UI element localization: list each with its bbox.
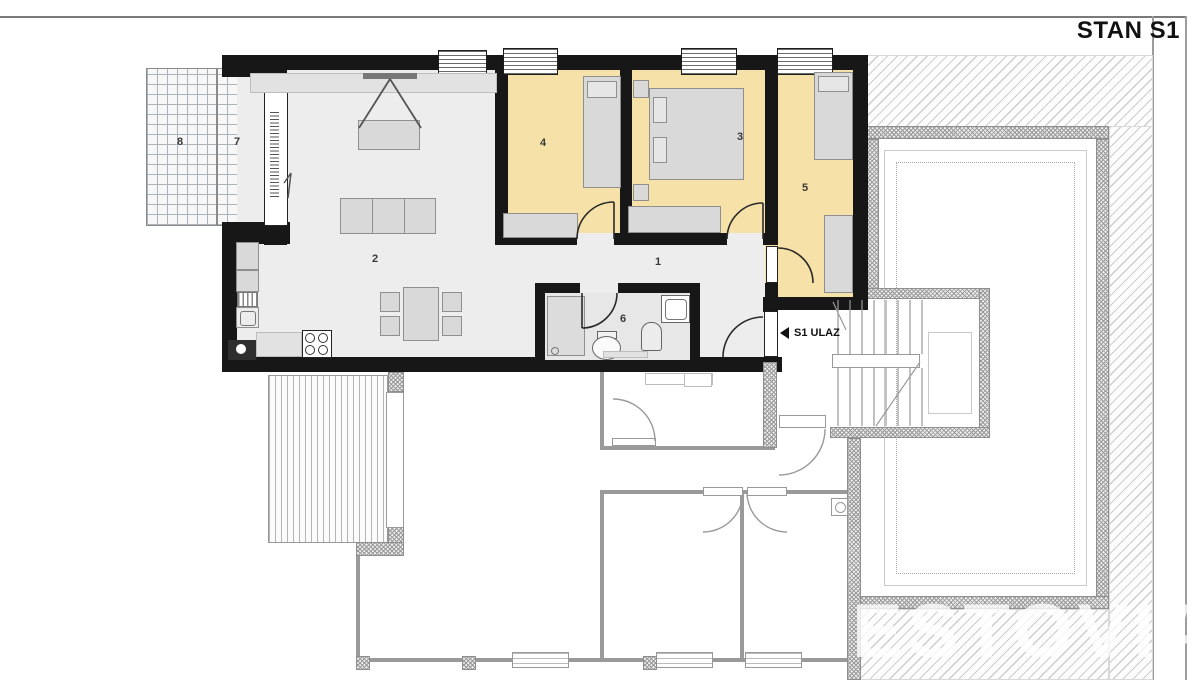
watermark: ESTOVIA bbox=[852, 588, 1200, 675]
stove-burner-3 bbox=[305, 345, 315, 355]
window-bedroom-4 bbox=[503, 48, 558, 75]
lower-hall-wall-right bbox=[763, 362, 777, 448]
room-label-hallway: 1 bbox=[655, 256, 661, 268]
bath-wall-top-b bbox=[618, 283, 690, 293]
nightstand-room3-bottom bbox=[633, 184, 649, 201]
lower-door-jamb-1 bbox=[703, 487, 743, 496]
dining-chair-1 bbox=[380, 292, 400, 312]
roof-enclosure-wall-right bbox=[1096, 139, 1109, 609]
sink-basin bbox=[240, 311, 256, 326]
stairwell-wall-right bbox=[979, 288, 990, 438]
bath-wall-left bbox=[535, 283, 545, 372]
pillow-room4 bbox=[587, 81, 617, 98]
wardrobe-room4 bbox=[503, 213, 578, 238]
wall-rooms-bottom-b bbox=[614, 233, 727, 245]
stairwell-landing bbox=[832, 354, 920, 368]
bathroom-shelf bbox=[603, 351, 648, 358]
lower-wall-top-c bbox=[787, 490, 852, 494]
sheet-right-rule-outer bbox=[1185, 16, 1187, 680]
room-label-bedroom4: 4 bbox=[540, 137, 546, 149]
corner-sink-bowl bbox=[236, 344, 246, 354]
fridge bbox=[236, 242, 259, 270]
lower-boiler-dial bbox=[835, 502, 846, 513]
lower-sliding-door bbox=[386, 392, 404, 528]
lower-door-jamb-2 bbox=[747, 487, 787, 496]
pillow-room5 bbox=[818, 76, 849, 92]
hanging-chair-bar bbox=[363, 73, 417, 79]
lower-wall-left bbox=[356, 556, 360, 662]
lower-stair-door bbox=[779, 415, 826, 428]
roof-enclosure-wall-top bbox=[866, 126, 1109, 139]
window-bedroom-5 bbox=[777, 48, 833, 75]
entrance-door bbox=[764, 311, 778, 357]
washing-machine-drum bbox=[665, 299, 687, 320]
floor-plan-canvas: 1 2 3 4 5 6 7 8 S1 ULAZ ESTOVIA STAN S1 bbox=[0, 0, 1200, 680]
lower-balcony-striped bbox=[268, 375, 388, 543]
stairwell-shaft-outline bbox=[928, 332, 972, 414]
window-living bbox=[438, 50, 487, 74]
stairwell-wall-bottom bbox=[830, 427, 990, 438]
lower-hall-door-leaf bbox=[612, 438, 656, 446]
kitchen-cabinet bbox=[236, 270, 259, 292]
lower-post-1 bbox=[356, 656, 370, 670]
lower-wall-divider-1 bbox=[600, 490, 604, 660]
wardrobe-room3 bbox=[628, 206, 721, 233]
entrance-label: S1 ULAZ bbox=[794, 327, 840, 339]
hanging-chair-seat bbox=[358, 120, 420, 150]
kitchen-counter bbox=[256, 332, 302, 357]
lower-radiator-box bbox=[684, 373, 712, 387]
entrance-arrow-icon bbox=[780, 327, 789, 339]
sofa-seam-1 bbox=[372, 199, 373, 233]
stove-burner-4 bbox=[318, 345, 328, 355]
lower-balcony-corner bbox=[356, 542, 404, 556]
wall-right bbox=[853, 70, 868, 310]
room-label-bedroom5: 5 bbox=[802, 182, 808, 194]
sofa bbox=[340, 198, 436, 234]
room-label-living: 2 bbox=[372, 253, 378, 265]
lower-hall-wall-left bbox=[600, 372, 604, 448]
wall-room3-5 bbox=[765, 70, 778, 233]
sliding-door-track bbox=[270, 112, 279, 197]
room-label-bedroom3: 3 bbox=[737, 131, 743, 143]
lower-balcony-post-top bbox=[388, 372, 404, 392]
dining-chair-4 bbox=[442, 316, 462, 336]
dining-table bbox=[403, 287, 439, 341]
bathroom-sink bbox=[641, 322, 662, 351]
lower-wall-divider-2 bbox=[740, 490, 744, 660]
wall-entry-stub-top bbox=[763, 297, 778, 312]
wall-rooms-bottom-c bbox=[763, 233, 778, 245]
dresser-room5 bbox=[824, 215, 853, 293]
lower-wall-top-a bbox=[600, 490, 703, 494]
lower-window-1 bbox=[512, 652, 569, 668]
pillow-room3-bottom bbox=[653, 137, 667, 163]
lower-hall-wall-bottom bbox=[600, 446, 775, 450]
wall-room5-bottom bbox=[765, 297, 868, 310]
room-label-terrace8: 8 bbox=[177, 136, 183, 148]
stove-burner-1 bbox=[305, 333, 315, 343]
roof-hatch-top bbox=[866, 55, 1153, 128]
window-bedroom-3 bbox=[681, 48, 737, 75]
terrace-divider bbox=[216, 68, 218, 226]
wall-room5-door-stub bbox=[765, 283, 778, 297]
sofa-seam-2 bbox=[404, 199, 405, 233]
room-label-bathroom: 6 bbox=[620, 313, 626, 325]
pillow-room3-top bbox=[653, 97, 667, 123]
dishwasher bbox=[237, 292, 258, 307]
stove-burner-2 bbox=[318, 333, 328, 343]
nightstand-room3-top bbox=[633, 80, 649, 98]
bath-wall-right bbox=[690, 283, 700, 360]
lower-post-3 bbox=[643, 656, 657, 670]
dining-chair-2 bbox=[380, 316, 400, 336]
dining-chair-3 bbox=[442, 292, 462, 312]
shower-drain bbox=[551, 347, 559, 355]
room-label-terrace7: 7 bbox=[234, 136, 240, 148]
bedroom5-door bbox=[766, 246, 778, 283]
lower-window-3 bbox=[745, 652, 802, 668]
lower-post-2 bbox=[462, 656, 476, 670]
lower-window-2 bbox=[656, 652, 713, 668]
page-title: STAN S1 bbox=[930, 17, 1180, 45]
